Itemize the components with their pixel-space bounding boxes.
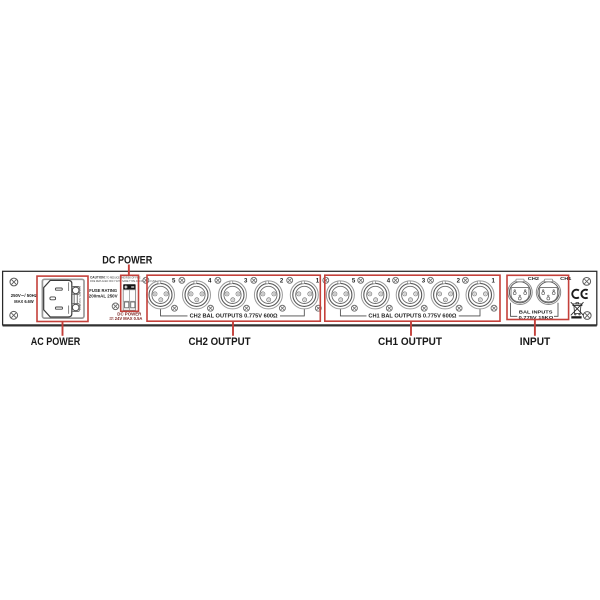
svg-text:CH2: CH2	[528, 276, 540, 281]
svg-text:5: 5	[172, 277, 176, 284]
svg-text:CH1 OUTPUT: CH1 OUTPUT	[378, 336, 442, 348]
svg-text:FUSE 250V T2AL 250V: FUSE 250V T2AL 250V	[79, 285, 82, 310]
svg-text:24V MAX 0.5A: 24V MAX 0.5A	[115, 316, 143, 321]
svg-text:1: 1	[492, 277, 496, 284]
svg-text:3: 3	[422, 277, 426, 284]
svg-text:INPUT: INPUT	[520, 336, 551, 348]
svg-text:200mAL 250V: 200mAL 250V	[89, 294, 118, 299]
svg-text:AC POWER: AC POWER	[31, 336, 81, 348]
svg-text:FUSE RATING: FUSE RATING	[89, 288, 117, 293]
svg-text:3: 3	[244, 277, 248, 284]
svg-text:250V∼/ 50Hz: 250V∼/ 50Hz	[11, 293, 38, 298]
svg-text:4: 4	[208, 277, 212, 284]
svg-text:DC POWER: DC POWER	[102, 255, 152, 267]
svg-text:MAX 6.6W: MAX 6.6W	[14, 299, 34, 304]
svg-text:CH1 BAL OUTPUTS 0.775V 600Ω: CH1 BAL OUTPUTS 0.775V 600Ω	[368, 313, 456, 319]
svg-text:CH1: CH1	[560, 276, 572, 281]
svg-text:CH2 BAL OUTPUTS 0.775V 600Ω: CH2 BAL OUTPUTS 0.775V 600Ω	[190, 313, 278, 319]
svg-text:BAL INPUTS: BAL INPUTS	[519, 310, 553, 315]
svg-text:CH2 OUTPUT: CH2 OUTPUT	[189, 336, 251, 348]
